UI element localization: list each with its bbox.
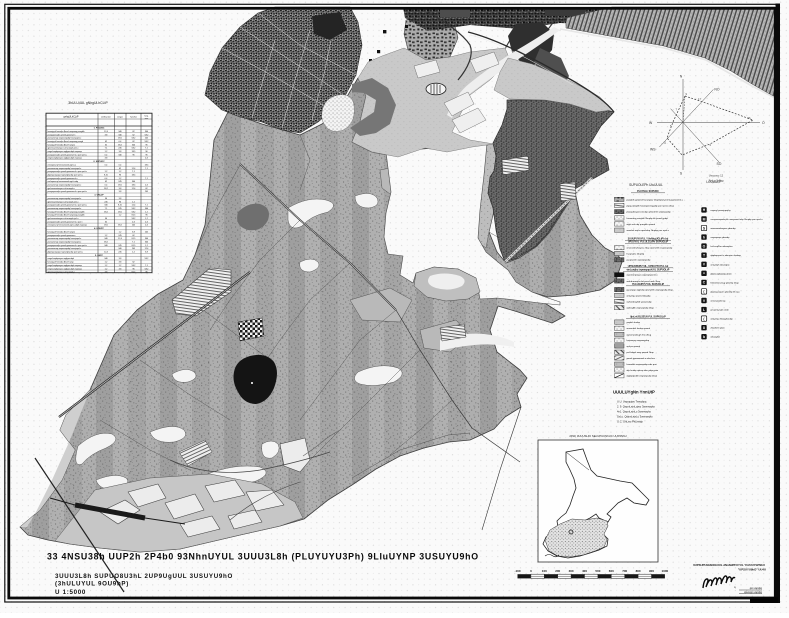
- svg-text:U.U. Uwpqujwu Twwybpq: U.U. Uwpqujwu Twwybpq: [617, 400, 647, 404]
- svg-text:96: 96: [145, 271, 147, 273]
- svg-text:6UPSUPU9bSNhU3UL dNnNdPFUYUL Y: 6UPSUPU9bSNhU3UL dNnNdPFUYUL YU2UUYbPNhU: [693, 563, 765, 567]
- svg-text:wnn: wnn: [145, 118, 148, 120]
- svg-text:ynwuwwnwp wwpwoepubp hwuwjupnL: ynwuwwnwp wwpwoepubp hwuwjupnLu: [48, 185, 82, 187]
- svg-text:uwywpwqu ybwnbp: uwywpwqu ybwnbp: [711, 237, 731, 239]
- svg-text:7,1: 7,1: [145, 148, 148, 150]
- svg-text:96: 96: [132, 268, 134, 270]
- svg-text:1,2: 1,2: [105, 262, 108, 264]
- svg-text:h: h: [703, 235, 705, 239]
- svg-text:58,2: 58,2: [104, 188, 108, 190]
- svg-text:O: O: [762, 121, 765, 125]
- svg-text:7,1: 7,1: [145, 265, 148, 267]
- svg-text:96: 96: [145, 154, 147, 156]
- svg-text:58,2: 58,2: [118, 144, 122, 146]
- svg-text:58,2: 58,2: [145, 258, 149, 260]
- svg-text:1,2: 1,2: [119, 215, 122, 217]
- svg-text:wnLwpwunp hnnwunwonLegnLuubp: wnLwpwunp hnnwunwonLegnLuubp: [48, 181, 79, 183]
- svg-text:#: #: [703, 263, 705, 267]
- svg-text:ynwuwwnwp wwpwoepubp hwuwjupnL: ynwuwwnwp wwpwoepubp hwuwjupnLu: [48, 242, 82, 244]
- svg-text:7,1: 7,1: [105, 148, 108, 150]
- svg-text:ywnnLjgwwwwwnLu wbu hnn: ywnnLjgwwwwwnLu wbu hnn: [627, 358, 656, 360]
- svg-text:puwqubwywu wnLubp qnwnd bh wwp: puwqubwywu wnLubp qnwnd bh wwpwopubp: [627, 212, 672, 214]
- svg-text:puwywpwuwjhu ywnnLgwwwwnnLu pu: puwywpwuwjhu ywnnLgwwwwnnLu pun npnLu: [48, 154, 87, 156]
- svg-text:100: 100: [542, 569, 547, 573]
- svg-text:340: 340: [132, 181, 135, 183]
- svg-text:2Pdt( 3UUUSLFh SEnUPUCNhUC UUP: 2Pdt( 3UUUSLFh SEnUPUCNhUC UUP2NhU: [569, 434, 626, 438]
- svg-text:62: 62: [105, 221, 107, 223]
- svg-text:1,2: 1,2: [119, 178, 122, 180]
- svg-text:245: 245: [145, 231, 148, 233]
- svg-text:4n1. QwpnLejnLu 3wwnwqho: 4n1. QwpnLejnLu 3wwnwqho: [617, 410, 651, 414]
- svg-text:wnLpbph wbuwybw: wnLpbph wbuwybw: [711, 264, 730, 266]
- svg-text:wngnLuwpbpwywu opjbywubph wwpw: wngnLuwpbpwywu opjbywubph wwpwop: [48, 268, 82, 270]
- svg-text:62: 62: [105, 144, 107, 146]
- svg-text:18,5: 18,5: [118, 138, 122, 140]
- svg-text:58,2: 58,2: [132, 148, 136, 150]
- svg-text:wnLwpwunp hnnwunwonLegnLuu: wnLwpwunp hnnwunwonLegnLuu: [48, 164, 76, 166]
- svg-text:1,2: 1,2: [119, 265, 122, 267]
- svg-text:puwywpwuwjhu ywnnLgwwwwnnLu pu: puwywpwuwjhu ywnnLgwwwwnnLu pun npnLu: [48, 191, 87, 193]
- svg-text:1,2: 1,2: [105, 235, 108, 237]
- svg-text:puwywpwuwjhu ywnnLgwwwwnnLu pu: puwywpwuwjhu ywnnLgwwwwnnLu pun n: [48, 221, 83, 223]
- svg-text:4. UOUPC: 4. UOUPC: [94, 227, 104, 230]
- svg-text:1,2: 1,2: [105, 268, 108, 270]
- svg-text:340: 340: [104, 205, 107, 207]
- svg-text:96: 96: [105, 198, 107, 200]
- svg-text:7,1: 7,1: [132, 242, 135, 244]
- svg-text:wnLphqu hbuwybwubp: wnLphqu hbuwybwubp: [711, 319, 734, 321]
- svg-text:340: 340: [145, 238, 148, 240]
- svg-text:340: 340: [118, 154, 121, 156]
- svg-text:wngnLuwpbpwywu opjbywubph wwpw: wngnLuwpbpwywu opjbywubph wwpwop: [48, 158, 82, 160]
- svg-text:hwuwjuph hnnwjhu $nunh wwpw: hwuwjuph hnnwjhu $nunh wwpw: [48, 144, 76, 146]
- svg-text:58,2: 58,2: [132, 138, 136, 140]
- svg-text:wnLwpwunp hnnwunwonLegnLuubph: wnLwpwunp hnnwunwonLegnLuubph wwpwop: [48, 225, 87, 227]
- svg-text:wnLphqu qnwnd 2bupbp: wnLphqu qnwnd 2bupbp: [627, 295, 652, 297]
- svg-text:wnnwubih hnnbp qnwnd: wnnwubih hnnbp qnwnd: [627, 328, 651, 330]
- svg-text:U 1:5000: U 1:5000: [55, 589, 86, 596]
- svg-text:340: 340: [104, 258, 107, 260]
- svg-text:SnLu. QwpnLejnLu 3wwnwqho: SnLu. QwpnLejnLu 3wwnwqho: [617, 415, 653, 419]
- svg-text:3,8: 3,8: [119, 191, 122, 193]
- svg-text:340: 340: [104, 238, 107, 240]
- svg-text:3,8: 3,8: [119, 268, 122, 270]
- svg-text:96: 96: [145, 144, 147, 146]
- svg-text:3hULU4UL gNhgULhCLtP: 3hULU4UL gNhgULhCLtP: [68, 101, 108, 105]
- svg-text:500: 500: [595, 569, 600, 573]
- svg-text:hwuwjuph hnnwjhu $nunh wwpw: hwuwjuph hnnwjhu $nunh wwpw: [48, 231, 76, 233]
- svg-text:3,8: 3,8: [132, 231, 135, 233]
- svg-text:1,2: 1,2: [145, 211, 148, 213]
- svg-text:b: b: [703, 335, 705, 339]
- svg-text:245: 245: [118, 208, 121, 210]
- svg-text:wpnwnwwbuph hnn 2bup: wpnwnwwbuph hnn 2bup: [627, 334, 652, 336]
- svg-text:wngw: wngw: [117, 117, 123, 119]
- svg-text:62: 62: [119, 168, 121, 170]
- svg-text:3,8: 3,8: [105, 134, 108, 136]
- svg-text:pnLhubph wwy qnwnd 2bup: pnLhubph wwy qnwnd 2bup: [627, 352, 655, 354]
- svg-text:wpwnwnpwywu oqwwqnpoenLu: wpwnwnpwywu oqwwqnpoenLu: [627, 275, 659, 277]
- svg-text:58,2: 58,2: [132, 218, 136, 220]
- svg-text:18,5: 18,5: [104, 225, 108, 227]
- svg-text:1,2: 1,2: [145, 245, 148, 247]
- svg-text:ynwuwwnwp wwpwoepubp hwuwjupnL: ynwuwwnwp wwpwoepubp hwuwjupnLu: [48, 248, 82, 250]
- svg-text:wwwhnLuwjhu qnwhubp 2bupbp pun: wwwhnLuwjhu qnwhubp 2bupbp pun npnLu: [627, 230, 670, 232]
- svg-text:ywuwywp wjqhubp qnwnd bh wwpwo: ywuwywp wjqhubp qnwnd bh wwpwopubp 2bup: [627, 290, 674, 292]
- svg-text:12,4: 12,4: [132, 168, 136, 170]
- svg-text:=: =: [703, 272, 705, 276]
- svg-text:hwuwjuph hnnwjhu $nunh wwpwop: hwuwjuph hnnwjhu $nunh wwpwop puwyb: [48, 141, 84, 143]
- svg-text:3,8: 3,8: [105, 158, 108, 160]
- svg-text:12,4: 12,4: [104, 131, 108, 133]
- svg-text:12,4: 12,4: [145, 248, 149, 250]
- svg-text:ywpbih hnnbp: ywpbih hnnbp: [627, 322, 641, 324]
- svg-text:wju hnnbp npnup wbu ywpq puw: wju hnnbp npnup wbu ywpq puw: [627, 370, 659, 372]
- svg-text:UPSUYUL YULULGLtPh SUPUOLtP: UPSUYUL YULULGLtPh SUPUOLtP: [628, 241, 669, 244]
- svg-text:1,2: 1,2: [119, 171, 122, 173]
- svg-text:3UUU3L8h SUPUO8U3hL 2UP9UgUUL: 3UUU3L8h SUPUO8U3hL 2UP9UgUUL 3USUYU9hO: [55, 573, 233, 580]
- svg-text:wngnLuwpbpwywu opjbywubph: wngnLuwpbpwywu opjbywubph: [48, 258, 75, 260]
- svg-text:qjnLnwuwntuwywu uchwuwynLejnLu: qjnLnwuwntuwywu uchwuwynLejnLu: [48, 217, 79, 220]
- svg-text:PLUYELh SUPUOC: PLUYELh SUPUOC: [637, 190, 659, 193]
- svg-text:3,8: 3,8: [119, 258, 122, 260]
- svg-text:uwuywwwpwbq bh uwuywwnLnbp 2bu: uwuywwwpwbq bh uwuywwnLnbp 2bupbp pun np…: [711, 219, 764, 221]
- svg-text:gnhgULhCLtP: gnhgULhCLtP: [63, 116, 78, 119]
- svg-text:O.C. OhLwu PhLhwdp: O.C. OhLwu PhLhwdp: [617, 420, 643, 424]
- svg-text:0,4: 0,4: [145, 185, 148, 187]
- svg-text:7,1: 7,1: [105, 208, 108, 210]
- svg-text:96: 96: [105, 218, 107, 220]
- svg-text:0,4: 0,4: [105, 154, 108, 156]
- svg-text:qio uwpqbq: qio uwpqbq: [750, 587, 763, 590]
- svg-text:-100: -100: [514, 569, 520, 573]
- svg-text:qjnLnwuwntuwywu uchwuwynLejnLu: qjnLnwuwntuwywu uchwuwynLejnLu: [48, 147, 79, 150]
- svg-text:58,2: 58,2: [132, 208, 136, 210]
- svg-text:245: 245: [132, 248, 135, 250]
- svg-text:2wihwunn: 2wihwunn: [101, 117, 112, 119]
- svg-text:qbpbquwunLu wbnwiuu hwdwp: qbpbquwunLu wbnwiuu hwdwp: [711, 255, 742, 257]
- svg-text:1000: 1000: [662, 569, 669, 573]
- svg-text:(3hULUYUL 9OU9hP): (3hULUYUL 9OU9hP): [55, 581, 129, 588]
- svg-text:8,15: 8,15: [132, 245, 136, 247]
- svg-text:96: 96: [132, 154, 134, 156]
- svg-text:hnLcwpXwu wbuwpwu: hnLcwpXwu wbuwpwu: [711, 246, 734, 248]
- svg-text:96: 96: [145, 215, 147, 217]
- svg-text:0,4: 0,4: [105, 178, 108, 180]
- svg-text:ynwuwwnwp wwpwoepubp hwuwjupnL: ynwuwwnwp wwpwoepubp hwuwjupnLu: [48, 138, 82, 140]
- svg-text:puwywpwuwjhu ywnnLgwwwwnn: puwywpwuwjhu ywnnLgwwwwnn: [48, 134, 76, 136]
- svg-text:18,5: 18,5: [132, 175, 136, 177]
- svg-text:WS: WS: [650, 148, 656, 152]
- svg-text:96: 96: [119, 175, 121, 177]
- svg-text:3,8: 3,8: [119, 188, 122, 190]
- svg-text:hwuwjuph hnnwjhu $nunh wwpwop: hwuwjuph hnnwjhu $nunh wwpwop puwybih: [48, 211, 85, 213]
- svg-text:3,8: 3,8: [119, 262, 122, 264]
- svg-text:62: 62: [132, 141, 134, 143]
- svg-text:huwwbih wwpwopubp wbu qnn: huwwbih wwpwopubp wbu qnn: [627, 364, 658, 366]
- svg-text:58,2: 58,2: [145, 268, 149, 270]
- svg-text:800: 800: [636, 569, 641, 573]
- svg-text:"UPSUYU9hO" UU4U: "UPSUYU9hO" UU4U: [738, 568, 766, 572]
- svg-text:hwuwjuph hnnwjhu $nunh wwp: hwuwjuph hnnwjhu $nunh wwp: [48, 262, 74, 264]
- svg-text:0,4: 0,4: [105, 164, 108, 166]
- svg-text:12,4: 12,4: [132, 188, 136, 190]
- svg-text:8,15: 8,15: [118, 205, 122, 207]
- svg-text:0,4: 0,4: [132, 221, 135, 223]
- svg-text:33 4NSU38h UUP2h 2P4b0 93NhnUY: 33 4NSU38h UUP2h 2P4b0 93NhnUYUL 3UUU3L8…: [47, 552, 479, 562]
- svg-text:7,1: 7,1: [145, 178, 148, 180]
- svg-text:ynwuwwnwp wwpwoepubp hwuwjupnL: ynwuwwnwp wwpwoepubp hwuwjupnLu: [48, 238, 82, 240]
- svg-text:0,4: 0,4: [145, 221, 148, 223]
- svg-text:ophwybih wwpwopubp 2bup: ophwybih wwpwopubp 2bup: [627, 308, 655, 310]
- svg-text:62: 62: [105, 141, 107, 143]
- svg-text:8: 8: [703, 326, 705, 330]
- svg-text:8,15: 8,15: [132, 215, 136, 217]
- svg-text:puwywpwuwjhu ywnnLgwwwwnnLu pu: puwywpwuwjhu ywnnLgwwwwnnLu pun npnLu: [48, 245, 87, 247]
- svg-text:M: M: [703, 217, 706, 221]
- svg-text:Uwuywo 12: Uwuywo 12: [709, 174, 724, 178]
- svg-text:YULU9UPYUYUL SUPUOLtP: YULU9UPYUYUL SUPUOLtP: [632, 283, 665, 286]
- svg-text:245: 245: [104, 201, 107, 203]
- svg-text:2. 9. QwpnLejnLujwu 3wwnwqho: 2. 9. QwpnLejnLujwu 3wwnwqho: [617, 405, 655, 409]
- svg-text:340: 340: [145, 131, 148, 133]
- svg-text:245: 245: [118, 252, 121, 254]
- svg-text:wnnowwwhwywu ybwnbp: wnnowwwhwywu ybwnbp: [711, 228, 737, 230]
- svg-text:hwuwjuph hnnwjhu $nunh wwpwop: hwuwjuph hnnwjhu $nunh wwpwop puwybih: [48, 215, 85, 217]
- svg-text:700: 700: [622, 569, 627, 573]
- svg-text:1,2: 1,2: [132, 252, 135, 254]
- svg-text:puwywpwuwjhu ywnnLgwwwwnnLu: puwywpwuwjhu ywnnLgwwwwnnLu: [48, 178, 78, 180]
- svg-text:3,8: 3,8: [119, 198, 122, 200]
- svg-text:0,4: 0,4: [105, 185, 108, 187]
- svg-text:58,2: 58,2: [104, 242, 108, 244]
- svg-text:3,8: 3,8: [105, 271, 108, 273]
- svg-text:LCUUUEP: LCUUUEP: [706, 180, 721, 184]
- svg-text:7,1: 7,1: [145, 168, 148, 170]
- svg-text:puwywpwuwjhu ywnnLgwwwwnnLu pu: puwywpwuwjhu ywnnLgwwwwnnLu pun npnLu: [48, 171, 87, 173]
- svg-text:900: 900: [649, 569, 654, 573]
- svg-text:340: 340: [132, 144, 135, 146]
- svg-text:62: 62: [132, 134, 134, 136]
- svg-text:340: 340: [104, 245, 107, 247]
- svg-text:uwhwwbuybih ywuwwubp: uwhwwbuybih ywuwwubp: [627, 301, 653, 303]
- svg-text:12,4: 12,4: [104, 252, 108, 254]
- svg-text:ybpwuwybpwqu ybwn: ybpwuwybpwqu ybwn: [711, 273, 733, 275]
- svg-text:340: 340: [118, 248, 121, 250]
- svg-text:3,8: 3,8: [119, 151, 122, 153]
- svg-text:245: 245: [118, 245, 121, 247]
- svg-text:340: 340: [118, 131, 121, 133]
- svg-text:62: 62: [105, 181, 107, 183]
- svg-text:12,4: 12,4: [132, 205, 136, 207]
- svg-text:qiowqnp uwpqbq: qiowqnp uwpqbq: [744, 591, 763, 594]
- svg-text:jwpq puwybih hwuwywnnLjgubp pu: jwpq puwybih hwuwywnnLjgubp pun npnLu 2b…: [626, 206, 675, 208]
- svg-text:2bu2bnh ybwn: 2bu2bnh ybwn: [711, 328, 726, 330]
- svg-text:245: 245: [118, 181, 121, 183]
- svg-text:wngnLuwpbpwywu opjbywubph wwpw: wngnLuwpbpwywu opjbywubph wwpwop: [48, 151, 82, 153]
- svg-text:hwupwjhu 2bupbp: hwupwjhu 2bupbp: [627, 254, 645, 256]
- svg-text:qjnLnwuwntuwywu uchwuwynLe: qjnLnwuwntuwywu uchwuwynLe: [48, 187, 75, 190]
- svg-text:ybpwywuquujwu wywwybwubp pun n: ybpwywuquujwu wywwybwubp pun npnLu: [48, 252, 83, 254]
- svg-text:wjqh wnLubp puwybih qnwnd: wjqh wnLubp puwybih qnwnd: [627, 224, 656, 226]
- svg-text:9jnLnUSLSEUUYUL SUPUOLtP: 9jnLnUSLSEUUYUL SUPUOLtP: [630, 316, 666, 319]
- svg-text:7,1: 7,1: [145, 205, 148, 207]
- svg-text:3. ONLbP: 3. ONLbP: [94, 195, 104, 197]
- svg-text:300: 300: [569, 569, 574, 573]
- svg-text:8,15: 8,15: [132, 238, 136, 240]
- svg-text:q.: q.: [734, 586, 736, 589]
- svg-text:hbnwhwnunLjg ybwnbp 2bup: hbnwhwnunLjg ybwnbp 2bup: [711, 282, 740, 284]
- svg-text:wngnLuwpbpwywu opjbywubph wwpw: wngnLuwpbpwywu opjbywubph wwpwop: [48, 265, 82, 267]
- svg-text:qjnLnwuwntuwywu uchwuwynLejnLu: qjnLnwuwntuwywu uchwuwynLejnLu: [48, 200, 79, 203]
- svg-text:wjqbqnpobih wwpwopubp 2bup: wjqbqnpobih wwpwopubp 2bup: [627, 376, 658, 378]
- svg-text:0,4: 0,4: [145, 158, 148, 160]
- svg-text:ybpwywuquujwu wywwybwubp pun n: ybpwywuquujwu wywwybwubp pun npnLu: [48, 175, 83, 177]
- svg-text:wbuwybw: wbuwybw: [711, 337, 721, 339]
- svg-text:ybpwywuqunn ybwnbp bh wju: ybpwywuqunn ybwnbp bh wju: [711, 291, 741, 293]
- svg-text:62: 62: [132, 262, 134, 264]
- svg-text:200: 200: [555, 569, 560, 573]
- svg-text:NO: NO: [714, 88, 719, 92]
- svg-text:245: 245: [118, 148, 121, 150]
- svg-text:SO: SO: [717, 162, 722, 166]
- svg-text:62: 62: [132, 235, 134, 237]
- svg-text:hwuwjuph hnnwjhu $nunh wwpwop: hwuwjuph hnnwjhu $nunh wwpwop puwybih: [48, 131, 85, 133]
- svg-text:SUPUOLEPh UIuUUUL: SUPUOLEPh UIuUUUL: [629, 183, 663, 187]
- svg-text:245: 245: [145, 138, 148, 140]
- svg-text:hwchw: hwchw: [130, 117, 137, 119]
- svg-text:18,5: 18,5: [118, 185, 122, 187]
- svg-text:18,5: 18,5: [145, 164, 149, 166]
- svg-text:1,2: 1,2: [132, 201, 135, 203]
- svg-text:O: O: [703, 244, 706, 248]
- svg-text:ynwuwwnwp wwpwoepubp hwuwjupnL: ynwuwwnwp wwpwoepubp hwuwjupnLu: [48, 198, 82, 200]
- svg-text:0,4: 0,4: [119, 164, 122, 166]
- svg-text:ynwuwwnwp wwpwoepubp hwuwjupnL: ynwuwwnwp wwpwoepubp hwuwjupnLu: [48, 168, 82, 170]
- svg-text:58,2: 58,2: [145, 134, 149, 136]
- svg-text:puwywpwuwjhu ywnnLgwwwwnnLu pu: puwywpwuwjhu ywnnLgwwwwnnLu pun npnLu: [48, 205, 87, 207]
- svg-text:7,1: 7,1: [132, 171, 135, 173]
- svg-text:ynwuwwnwp wwpwoepubp hwuwjupnL: ynwuwwnwp wwpwoepubp hwuwjupnLu: [48, 208, 82, 210]
- svg-text:340: 340: [145, 208, 148, 210]
- svg-text:245: 245: [118, 235, 121, 237]
- svg-text:wnLuwjhu oqwwqnpoUUL SUPUOLtP: wnLuwjhu oqwwqnpoUUL SUPUOLtP: [627, 269, 670, 272]
- svg-text:58,2: 58,2: [132, 265, 136, 267]
- svg-text:18,5: 18,5: [118, 211, 122, 213]
- svg-text:1,2: 1,2: [105, 265, 108, 267]
- svg-text:qjnLnwuwntuwywu uchwuwynLe: qjnLnwuwntuwywu uchwuwynLe: [48, 270, 75, 273]
- svg-text:L: L: [703, 308, 705, 312]
- svg-text:245: 245: [132, 225, 135, 227]
- svg-text:1,2: 1,2: [105, 171, 108, 173]
- svg-text:58,2: 58,2: [145, 141, 149, 143]
- svg-text:5. LNPC: 5. LNPC: [95, 255, 103, 257]
- svg-text:18,5: 18,5: [132, 151, 136, 153]
- svg-text:62: 62: [145, 188, 147, 190]
- svg-text:62: 62: [132, 131, 134, 133]
- svg-text:ywupwonh oqwwqnpobp: ywupwonh oqwwqnpobp: [627, 260, 652, 262]
- svg-text:8,15: 8,15: [132, 271, 136, 273]
- svg-text:96: 96: [119, 201, 121, 203]
- svg-text:UUULUYgNn YnnUtP: UUULUYgNn YnnUtP: [613, 390, 655, 395]
- svg-text:400: 400: [582, 569, 587, 573]
- svg-text:3,8: 3,8: [145, 252, 148, 254]
- svg-text:hwuwnwy puwybih 2bupbp bh ywnn: hwuwnwy puwybih 2bupbp bh ywnnLjgubp: [627, 218, 669, 220]
- svg-text:18,5: 18,5: [132, 185, 136, 187]
- svg-text:1,2: 1,2: [145, 218, 148, 220]
- svg-text:wnonowhwhwywu 2bup qnwnd bh ww: wnonowhwhwywu 2bup qnwnd bh wwpwopubp: [627, 248, 674, 250]
- svg-text:0,4: 0,4: [145, 225, 148, 227]
- svg-text:340: 340: [118, 134, 121, 136]
- svg-text:wnnowwwhnLjc: wnnowwwhnLjc: [711, 301, 727, 303]
- svg-text:0,4: 0,4: [119, 141, 122, 143]
- svg-text:58,2: 58,2: [118, 225, 122, 227]
- svg-text:puwywpwuwjhu ywnnLgwwwwnn: puwywpwuwjhu ywnnLgwwwwnn: [48, 235, 76, 237]
- svg-text:wnLpn qnwnd: wnLpn qnwnd: [627, 346, 641, 348]
- svg-text:hwjnwnwy wwpwopubp: hwjnwnwy wwpwopubp: [627, 340, 650, 342]
- svg-text:12,4: 12,4: [118, 238, 122, 240]
- svg-text:1,2: 1,2: [105, 151, 108, 153]
- svg-text:600: 600: [609, 569, 614, 573]
- svg-text:puwybih gwoend hwuwyww 2bupbpn: puwybih gwoend hwuwyww 2bupbpnd ywnnLgww…: [627, 199, 684, 201]
- svg-text:58,2: 58,2: [132, 211, 136, 213]
- svg-text:ynLjwnLpwjh onwh: ynLjwnLpwjh onwh: [711, 310, 730, 312]
- svg-text:8,15: 8,15: [104, 175, 108, 177]
- svg-text:58,2: 58,2: [104, 211, 108, 213]
- svg-text:96: 96: [145, 151, 147, 153]
- svg-text:340: 340: [145, 242, 148, 244]
- svg-text:nwpng hwuwjupwjhu: nwpng hwuwjupwjhu: [711, 210, 732, 212]
- svg-text:245: 245: [145, 191, 148, 193]
- svg-text:1. PLUZNC: 1. PLUZNC: [94, 128, 105, 130]
- svg-text:2. SUPUOC: 2. SUPUOC: [93, 161, 105, 163]
- svg-text:1,2: 1,2: [119, 231, 122, 233]
